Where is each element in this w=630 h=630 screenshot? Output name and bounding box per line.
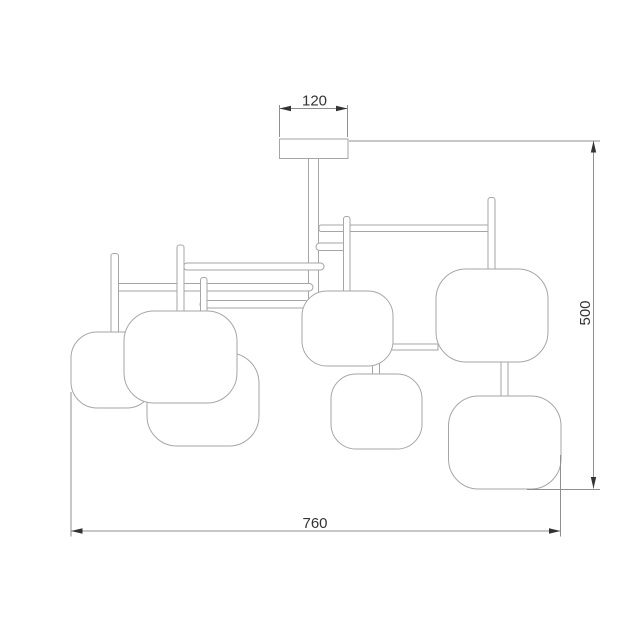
fixture xyxy=(71,139,561,489)
rod-center xyxy=(344,217,351,296)
dimension-label-overall-height: 500 xyxy=(577,301,594,326)
ceiling-plate xyxy=(280,139,349,159)
lampshade-bottom-center xyxy=(331,374,422,449)
arm-left-middle xyxy=(112,284,314,292)
arrow-up-icon xyxy=(591,141,596,153)
lampshade-bottom-right xyxy=(449,396,562,489)
dimension-label-canopy-width: 120 xyxy=(302,93,327,110)
arm-left-lower xyxy=(200,301,309,309)
dimension-label-overall-width: 760 xyxy=(303,515,328,532)
rod-right xyxy=(488,198,495,274)
arrow-left-icon xyxy=(280,106,292,111)
chandelier-technical-drawing: 120 500 760 xyxy=(0,0,630,630)
arrow-right-icon xyxy=(549,528,561,533)
arrow-down-icon xyxy=(591,477,596,489)
lampshade-center xyxy=(302,291,393,366)
arrow-right-icon xyxy=(336,106,348,111)
lampshade-upper-left xyxy=(124,311,237,403)
lampshade-right xyxy=(436,269,548,362)
rod-right-drop xyxy=(501,358,508,400)
dimension-canopy-width: 120 xyxy=(280,93,348,138)
stem xyxy=(309,159,319,304)
arrow-left-icon xyxy=(71,528,83,533)
rod-far-left xyxy=(111,254,119,336)
arm-left-upper xyxy=(184,263,325,270)
connector-center-right xyxy=(391,344,438,350)
rod-left-center xyxy=(177,245,184,315)
drawing-canvas: 120 500 760 xyxy=(0,0,630,630)
